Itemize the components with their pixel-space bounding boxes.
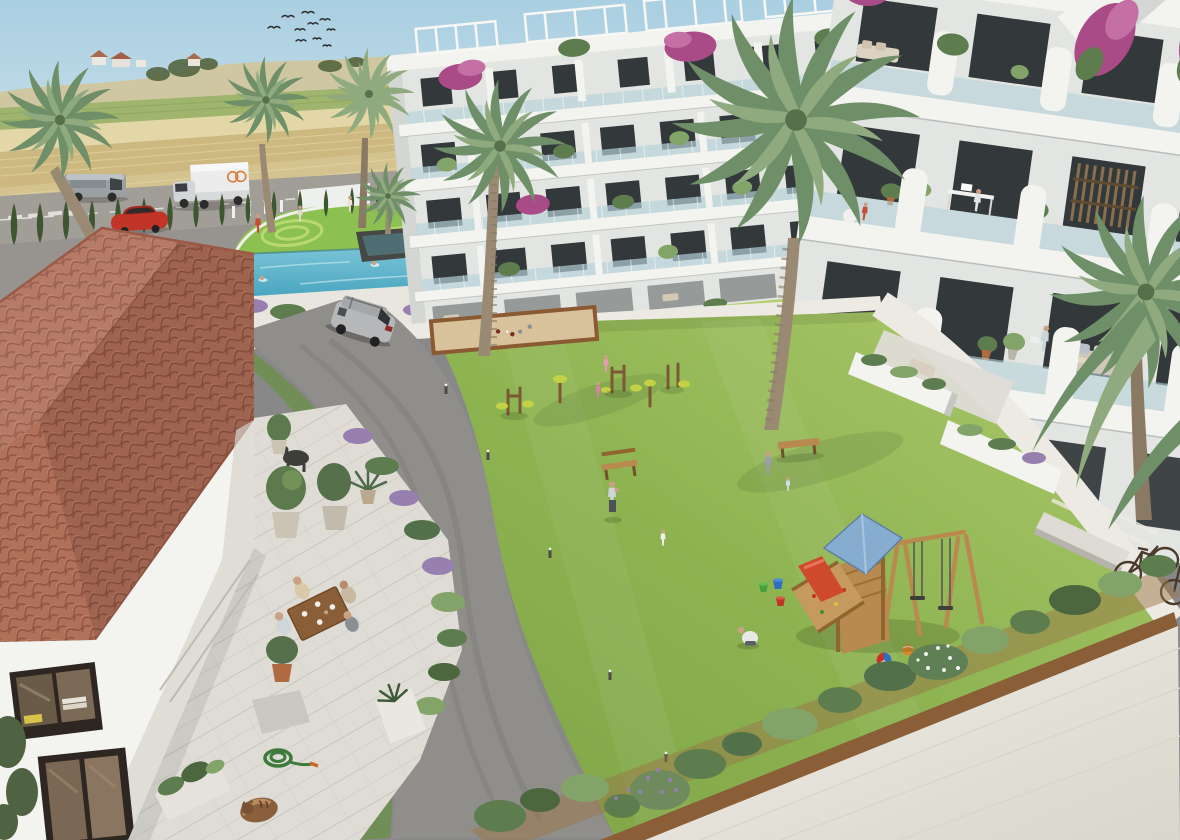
render-canvas bbox=[0, 0, 1180, 840]
scene-render bbox=[0, 0, 1180, 840]
house-window bbox=[9, 662, 103, 740]
house-door bbox=[38, 748, 135, 840]
